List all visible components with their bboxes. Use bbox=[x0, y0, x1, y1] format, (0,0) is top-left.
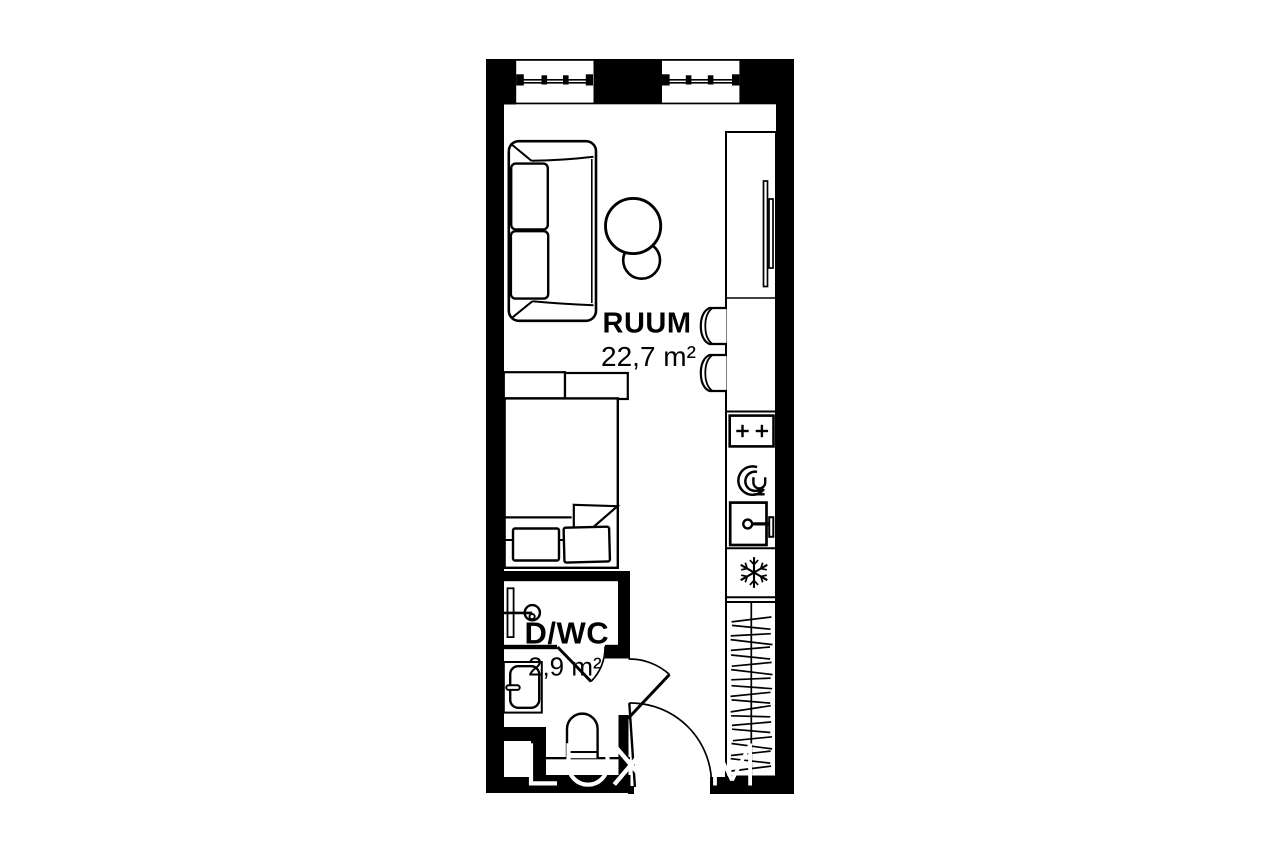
svg-text:22,7 m²: 22,7 m² bbox=[601, 341, 696, 372]
svg-text:RUUM: RUUM bbox=[603, 308, 692, 340]
svg-text:D/WC: D/WC bbox=[525, 616, 610, 651]
